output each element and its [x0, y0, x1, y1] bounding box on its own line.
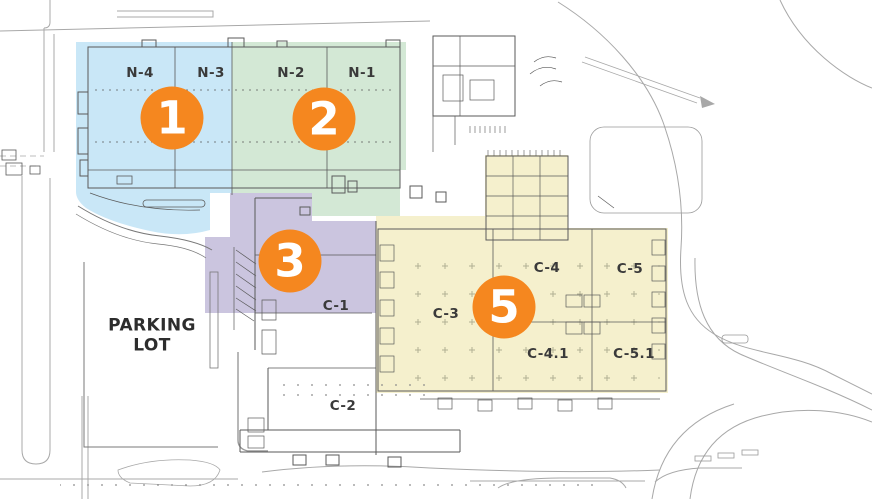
zone-badge-3-number: 3: [274, 239, 305, 284]
parking-lot-label-line2: LOT: [108, 336, 196, 356]
hall-label-c4: C-4: [534, 260, 560, 276]
hall-label-n4: N-4: [126, 65, 154, 81]
hall-label-c51: C-5.1: [613, 346, 655, 362]
zone-badge-2-number: 2: [308, 97, 339, 142]
hall-label-n1: N-1: [348, 65, 376, 81]
zone-badge-1[interactable]: 1: [141, 87, 204, 150]
parking-lot-label: PARKING LOT: [108, 316, 196, 357]
parking-lot-label-line1: PARKING: [108, 316, 196, 336]
hall-label-c5: C-5: [617, 261, 643, 277]
roadside-dots: [60, 484, 600, 494]
zone-badge-3[interactable]: 3: [259, 230, 322, 293]
hall-label-c1: C-1: [323, 298, 349, 314]
hall-label-n3: N-3: [197, 65, 225, 81]
zone-badge-2[interactable]: 2: [293, 88, 356, 151]
zone-badge-5[interactable]: 5: [473, 276, 536, 339]
hall-label-c2: C-2: [330, 398, 356, 414]
c2-floor-dots: [272, 382, 432, 396]
zone-badge-1-number: 1: [156, 96, 187, 141]
parking-stalls: [695, 335, 758, 461]
zone-badge-5-number: 5: [488, 285, 519, 330]
hall-label-n2: N-2: [277, 65, 305, 81]
facility-site-plan: N-4 N-3 N-2 N-1 C-1 C-3 C-4 C-5 C-4.1 C-…: [0, 0, 872, 499]
hall-label-c41: C-4.1: [527, 346, 569, 362]
hall-label-c3: C-3: [433, 306, 459, 322]
